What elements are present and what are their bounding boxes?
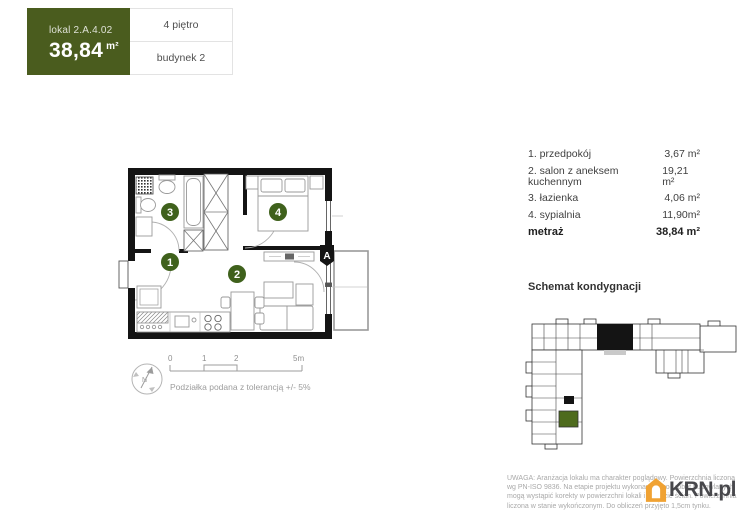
room-area: 19,21 m² [662, 166, 700, 188]
room-label: 2. salon z aneksem kuchennym [528, 166, 662, 188]
svg-text:1: 1 [202, 354, 207, 363]
stove-burner [215, 324, 221, 330]
total-area: 38,84 m² [656, 227, 700, 238]
room-row: 2. salon z aneksem kuchennym 19,21 m² [528, 166, 700, 188]
armchair [296, 284, 313, 305]
schematic-title: Schemat kondygnacji [528, 281, 641, 293]
unit-label: lokal 2.A.4.02 [49, 25, 130, 36]
total-label: metraż [528, 227, 563, 238]
unit-badge: lokal 2.A.4.02 38,84m² [27, 8, 130, 75]
schematic-left-wing [532, 350, 582, 444]
room-number-4: 4 [275, 207, 282, 219]
living-furniture [221, 282, 313, 330]
floor-plan: 1 2 3 4 A N 0 1 2 5m Podziałka podana z … [118, 158, 373, 398]
chair [221, 297, 230, 308]
room-area: 11,90m² [662, 210, 700, 221]
compass-icon: N [132, 364, 162, 394]
kitchen-sink [175, 316, 189, 327]
schematic-dark-block [597, 324, 633, 350]
svg-text:A: A [323, 251, 330, 262]
coffee-table [264, 282, 293, 298]
schematic-black-unit [564, 396, 574, 404]
stove-burner [215, 315, 221, 321]
sofa-icon [260, 306, 313, 330]
room-list: 1. przedpokój 3,67 m² 2. salon z aneksem… [528, 149, 700, 243]
room-total-row: metraż 38,84 m² [528, 227, 700, 238]
scale-note: Podziałka podana z tolerancją +/- 5% [170, 382, 311, 392]
room-label: 3. łazienka [528, 193, 578, 204]
floor-schematic [525, 316, 740, 456]
schematic-far-right [700, 326, 736, 352]
sink-icon [159, 181, 175, 194]
room-area: 3,67 m² [664, 149, 700, 160]
scale-bar: 0 1 2 5m Podziałka podana z tolerancją +… [168, 354, 311, 392]
svg-text:N: N [142, 377, 147, 384]
room-number-2: 2 [234, 269, 240, 281]
chair [255, 313, 264, 324]
schematic-gray-tab [604, 350, 626, 355]
krn-logo-text: KRN.pl [669, 478, 736, 502]
room-number-3: 3 [167, 207, 173, 219]
floor-cell: 4 piętro [130, 9, 232, 42]
room-row: 1. przedpokój 3,67 m² [528, 149, 700, 160]
washing-machine-icon [136, 177, 153, 194]
room-area: 4,06 m² [664, 193, 700, 204]
schematic-highlighted-unit [559, 411, 578, 427]
balcony-outline [332, 216, 368, 330]
svg-text:2: 2 [234, 354, 239, 363]
sink-tap [159, 175, 175, 180]
building-cell: budynek 2 [130, 42, 232, 74]
nightstand-left [246, 176, 258, 189]
toilet-icon [141, 199, 156, 212]
nightstand-right [310, 176, 323, 189]
svg-text:5m: 5m [293, 354, 304, 363]
unit-area-unit: m² [106, 41, 119, 52]
svg-text:0: 0 [168, 354, 173, 363]
header-cells: 4 piętro budynek 2 [130, 8, 233, 75]
unit-area: 38,84m² [49, 39, 130, 63]
room-row: 4. sypialnia 11,90m² [528, 210, 700, 221]
chair [255, 297, 264, 308]
drainer [137, 312, 168, 323]
kitchen-fixtures [137, 286, 230, 332]
room-label: 1. przedpokój [528, 149, 591, 160]
entrance-opening [128, 261, 135, 288]
unit-area-value: 38,84 [49, 39, 103, 62]
dining-table [231, 292, 254, 330]
bath-cabinet [136, 217, 152, 236]
room-number-1: 1 [167, 257, 173, 269]
room-label: 4. sypialnia [528, 210, 581, 221]
room-row: 3. łazienka 4,06 m² [528, 193, 700, 204]
stove-burner [205, 315, 211, 321]
krn-logo[interactable]: KRN.pl [645, 477, 736, 503]
stove-burner [205, 324, 211, 330]
krn-house-icon [645, 477, 667, 503]
